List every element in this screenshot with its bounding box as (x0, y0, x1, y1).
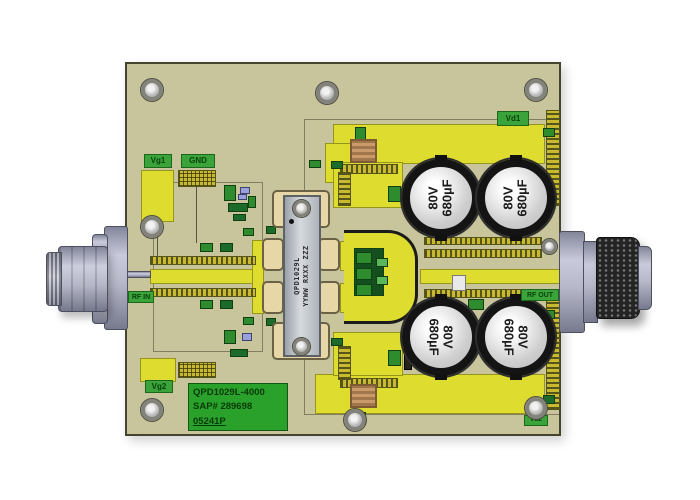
silkscreen-label-gnd: GND (181, 154, 215, 168)
transistor-lead (262, 281, 284, 314)
chip-component (468, 299, 484, 310)
chip-component (230, 349, 248, 357)
rf-input-connector-pin (127, 271, 151, 278)
electrolytic-capacitor: 80V 680µF (477, 298, 555, 376)
rf-output-connector-end (638, 246, 652, 310)
gate-bias-pad-bottom (140, 358, 176, 382)
chip-component (224, 330, 236, 344)
chip-component (309, 160, 321, 168)
capacitor-label: 80V 680µF (502, 179, 530, 216)
rf-output-connector-knurl (596, 237, 640, 319)
board-id-line1: QPD1029L-4000 (193, 386, 283, 400)
board-id-line3: 05241P (193, 416, 226, 427)
silkscreen-label-rf-out: RF OUT (521, 289, 559, 301)
chip-component (224, 185, 236, 201)
cap-crimp (435, 294, 447, 300)
capacitor-label: 80V 680µF (427, 179, 455, 216)
rf-input-connector-barrel (58, 246, 108, 312)
chip-component (220, 300, 233, 309)
silkscreen-label-vg1: Vg1 (144, 154, 172, 168)
top-feed-column (338, 172, 351, 206)
cap-voltage: 80V (441, 325, 455, 348)
mounting-screw (344, 409, 366, 431)
bottom-feed-column (338, 346, 351, 380)
input-via-row-bottom (150, 288, 256, 297)
mounting-screw (141, 216, 163, 238)
output-microstrip (420, 269, 561, 284)
chip-component (228, 203, 248, 212)
rf-output-connector-flange (559, 231, 585, 333)
chip-component (200, 300, 213, 309)
chip-component (200, 243, 213, 252)
capacitor-label: 80V 680µF (502, 318, 530, 355)
chip-component (356, 268, 372, 280)
chip-component (331, 161, 343, 169)
transistor-marking-line2: YYWW RXXX ZZZ (302, 245, 311, 306)
silkscreen-label-vd1: Vd1 (497, 111, 529, 126)
cap-crimp (510, 235, 522, 241)
inductor-component (350, 139, 377, 163)
output-via-row-2 (424, 249, 542, 258)
chip-component (543, 128, 555, 137)
transistor-marking: QPD1029L YYWW RXXX ZZZ (291, 211, 313, 341)
chip-component (356, 284, 372, 296)
transistor-lead (262, 238, 284, 271)
electrolytic-capacitor: 80V 680µF (402, 298, 480, 376)
chip-component (331, 338, 343, 346)
cap-crimp (435, 235, 447, 241)
board-id-line2: SAP# 289698 (193, 400, 283, 414)
chip-component (238, 194, 247, 200)
mounting-screw (141, 399, 163, 421)
mounting-screw (293, 200, 310, 217)
transistor-lead (318, 238, 340, 271)
chip-component (356, 252, 372, 264)
cap-crimp (435, 155, 447, 161)
capacitor-label: 80V 680µF (427, 318, 455, 355)
transistor-lead (318, 281, 340, 314)
input-via-row-top (150, 256, 256, 265)
chip-component (376, 258, 388, 267)
cap-capacitance: 680µF (502, 318, 516, 355)
input-microstrip (150, 269, 260, 284)
mounting-screw (316, 82, 338, 104)
silkscreen-label-vg2: Vg2 (145, 380, 173, 393)
electrolytic-capacitor: 80V 680µF (402, 159, 480, 237)
chip-component (233, 214, 246, 221)
chip-component (452, 275, 466, 291)
pcb-render: QPD1029L YYWW RXXX ZZZ 80V 680µF 80V 680… (0, 0, 700, 500)
chip-component (242, 333, 252, 341)
rf-input-connector-tip (46, 252, 62, 306)
mounting-screw (525, 397, 547, 419)
via-grid-top-left (178, 170, 216, 187)
chip-component (220, 243, 233, 252)
mounting-screw (525, 79, 547, 101)
inductor-component (350, 384, 377, 408)
chip-component (248, 196, 256, 208)
via-grid-bottom-left (178, 362, 216, 378)
chip-component (243, 228, 254, 236)
cap-crimp (510, 155, 522, 161)
cap-voltage: 80V (516, 325, 530, 348)
board-id-label: QPD1029L-4000 SAP# 289698 05241P (188, 383, 288, 431)
gate-bias-pad-top (141, 170, 174, 222)
chip-component (388, 186, 401, 202)
silkscreen-label-rf-in: RF IN (128, 291, 154, 303)
connector-flange-screw (542, 239, 557, 254)
electrolytic-capacitor: 80V 680µF (477, 159, 555, 237)
cap-capacitance: 680µF (516, 179, 530, 216)
cap-capacitance: 680µF (427, 318, 441, 355)
chip-component (376, 276, 388, 285)
mounting-screw (293, 338, 310, 355)
cap-crimp (435, 374, 447, 380)
mounting-screw (141, 79, 163, 101)
bias-trace (196, 187, 197, 243)
cap-crimp (510, 374, 522, 380)
chip-component (240, 187, 250, 194)
cap-capacitance: 680µF (441, 179, 455, 216)
transistor-marking-line1: QPD1029L (293, 257, 302, 295)
chip-component (243, 317, 254, 325)
chip-component (388, 350, 401, 366)
